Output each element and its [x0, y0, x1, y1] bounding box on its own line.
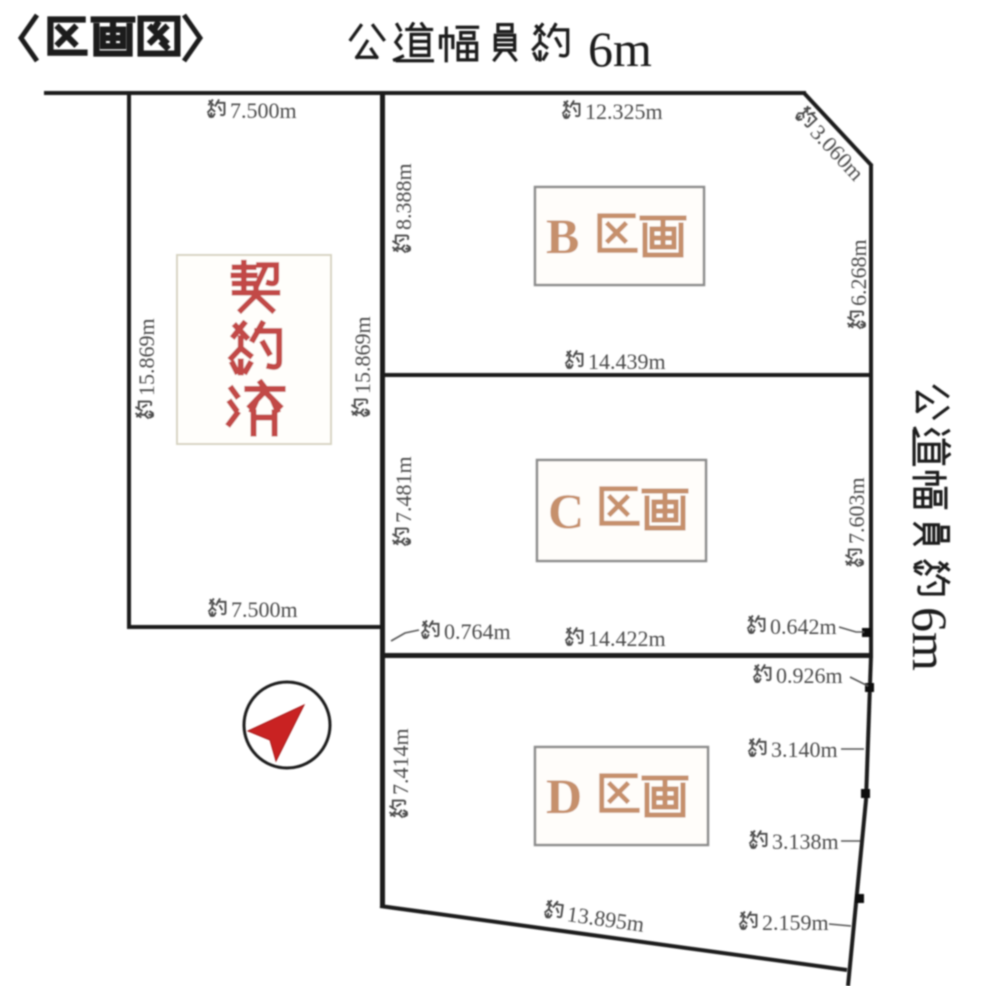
svg-text:15.869m: 15.869m	[134, 318, 159, 396]
svg-text:3.140m: 3.140m	[771, 737, 838, 762]
svg-text:7.414m: 7.414m	[388, 728, 413, 795]
svg-text:6m: 6m	[588, 21, 652, 77]
svg-text:C: C	[548, 483, 584, 539]
svg-text:3.138m: 3.138m	[772, 829, 839, 854]
svg-text:2.159m: 2.159m	[762, 910, 829, 935]
svg-text:0.764m: 0.764m	[444, 619, 511, 644]
svg-text:6.268m: 6.268m	[846, 239, 871, 306]
svg-text:0.926m: 0.926m	[776, 663, 843, 688]
svg-text:14.439m: 14.439m	[588, 349, 666, 374]
svg-text:6m: 6m	[902, 607, 958, 671]
svg-text:12.325m: 12.325m	[585, 99, 663, 124]
svg-text:7.481m: 7.481m	[391, 456, 416, 523]
svg-text:7.603m: 7.603m	[844, 477, 869, 544]
svg-text:7.500m: 7.500m	[230, 98, 297, 123]
svg-text:14.422m: 14.422m	[588, 626, 666, 651]
svg-text:D: D	[546, 768, 582, 824]
svg-text:8.388m: 8.388m	[391, 163, 416, 230]
svg-text:0.642m: 0.642m	[770, 614, 837, 639]
svg-text:7.500m: 7.500m	[231, 597, 298, 622]
svg-text:B: B	[546, 208, 579, 264]
svg-text:15.869m: 15.869m	[350, 316, 375, 394]
